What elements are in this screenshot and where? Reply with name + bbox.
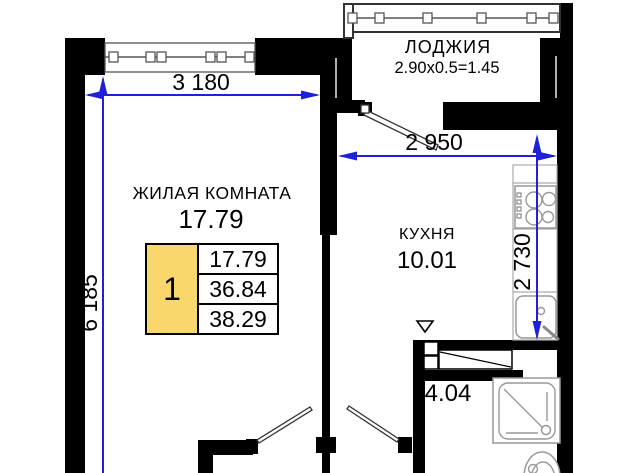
loggia-label: ЛОДЖИЯ [405,38,491,57]
apartment-summary-table: 1 17.79 36.84 38.29 [145,243,279,335]
living-room-area: 17.79 [178,206,243,233]
rooms-count-cell: 1 [147,245,199,333]
plan-graphics [0,0,640,473]
total-area-cell: 38.29 [199,305,277,333]
entrance-triangle-icon [417,321,433,332]
bathroom-sliding-door [424,342,512,369]
stove-icon [515,186,556,228]
dim-label-living-height: 6 185 [77,274,101,332]
floor-plan: ЖИЛАЯ КОМНАТА 17.79 ЛОДЖИЯ 2.90x0.5=1.45… [0,0,640,473]
bathroom-area: 4.04 [425,381,472,406]
area-without-loggia-cell: 36.84 [199,275,277,305]
living-window-icon [105,43,255,72]
living-door-leaf [257,407,312,443]
living-room-label: ЖИЛАЯ КОМНАТА [133,184,292,202]
loggia-formula: 2.90x0.5=1.45 [394,60,499,77]
dim-label-kitchen-width: 2 950 [405,130,463,154]
areas-column: 17.79 36.84 38.29 [199,245,277,333]
kitchen-label: КУХНЯ [399,227,455,244]
toilet-icon [524,452,560,473]
dim-label-living-width: 3 180 [172,70,230,94]
kitchen-area: 10.01 [397,248,457,273]
dim-label-kitchen-height: 2 730 [510,233,534,291]
living-area-cell: 17.79 [199,245,277,275]
shower-icon [493,378,560,443]
loggia-glazing-icon [344,4,560,38]
corridor-door-leaf [347,406,399,442]
